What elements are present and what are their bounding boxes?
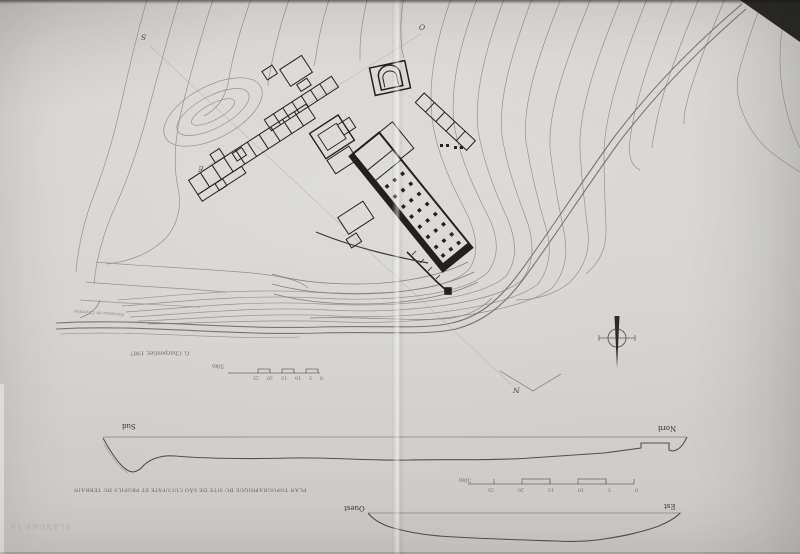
profile-scale-ticks: 0 5 10 15 20 25 xyxy=(488,486,638,491)
profile-tick: 10 xyxy=(578,486,584,491)
cut-marker-ouest: O xyxy=(419,23,425,31)
profile-tick: 25 xyxy=(488,486,494,491)
profile2-right-label: Est xyxy=(664,502,676,509)
scanned-plate-photo: PLAN TOPOGRAPHIQUE DU SITE DE SÃO CUCUFA… xyxy=(0,0,800,554)
northeast-long-building xyxy=(415,93,475,150)
profile-scale-bar xyxy=(468,479,634,484)
map-tick: 25 xyxy=(253,374,259,379)
columned-hall xyxy=(350,122,486,272)
north-arrow-icon xyxy=(599,316,635,368)
plate-caption: PLAN TOPOGRAPHIQUE DU SITE DE SÃO CUCUFA… xyxy=(64,486,316,492)
profile-tick: 5 xyxy=(608,486,611,491)
section-elbow-marker xyxy=(500,371,561,391)
map-tick: 20 xyxy=(267,374,273,379)
photo-top-edge xyxy=(0,0,800,4)
villa-buildings xyxy=(183,49,485,294)
map-tick: 15 xyxy=(281,374,287,379)
map-tick: 5 xyxy=(309,374,312,379)
map-scale-total: 50m xyxy=(212,362,224,367)
profile-tick: 20 xyxy=(518,486,524,491)
profile2-left-label: Ouest xyxy=(344,504,365,511)
page-left-edge xyxy=(0,384,4,554)
map-scale-ticks: 0 5 10 15 20 25 xyxy=(253,374,323,379)
page-fold-line xyxy=(392,0,404,554)
profile-tick: 15 xyxy=(548,486,554,491)
map-tick: 0 xyxy=(320,374,323,379)
cut-marker-sud: S xyxy=(141,33,146,41)
plate-number: PLANCHE 19 xyxy=(10,522,70,529)
profile-scale-total: 50m xyxy=(459,476,471,481)
cut-marker-nord: N xyxy=(513,386,520,394)
profile1-right-label: Nord xyxy=(658,424,676,431)
cartographer-credit: G. Charpentier, 1987 xyxy=(130,349,189,355)
terrace-wall xyxy=(316,232,428,263)
map-tick: 10 xyxy=(295,374,301,379)
theater-building xyxy=(369,61,410,96)
contour-lines xyxy=(76,0,800,324)
profile1-left-label: Sud xyxy=(122,422,136,429)
map-scale-bar xyxy=(228,369,320,373)
north-cluster xyxy=(262,49,318,104)
profile-tick: 0 xyxy=(635,486,638,491)
profile-ouest-est xyxy=(368,513,682,541)
cut-marker-est: E xyxy=(198,165,203,173)
